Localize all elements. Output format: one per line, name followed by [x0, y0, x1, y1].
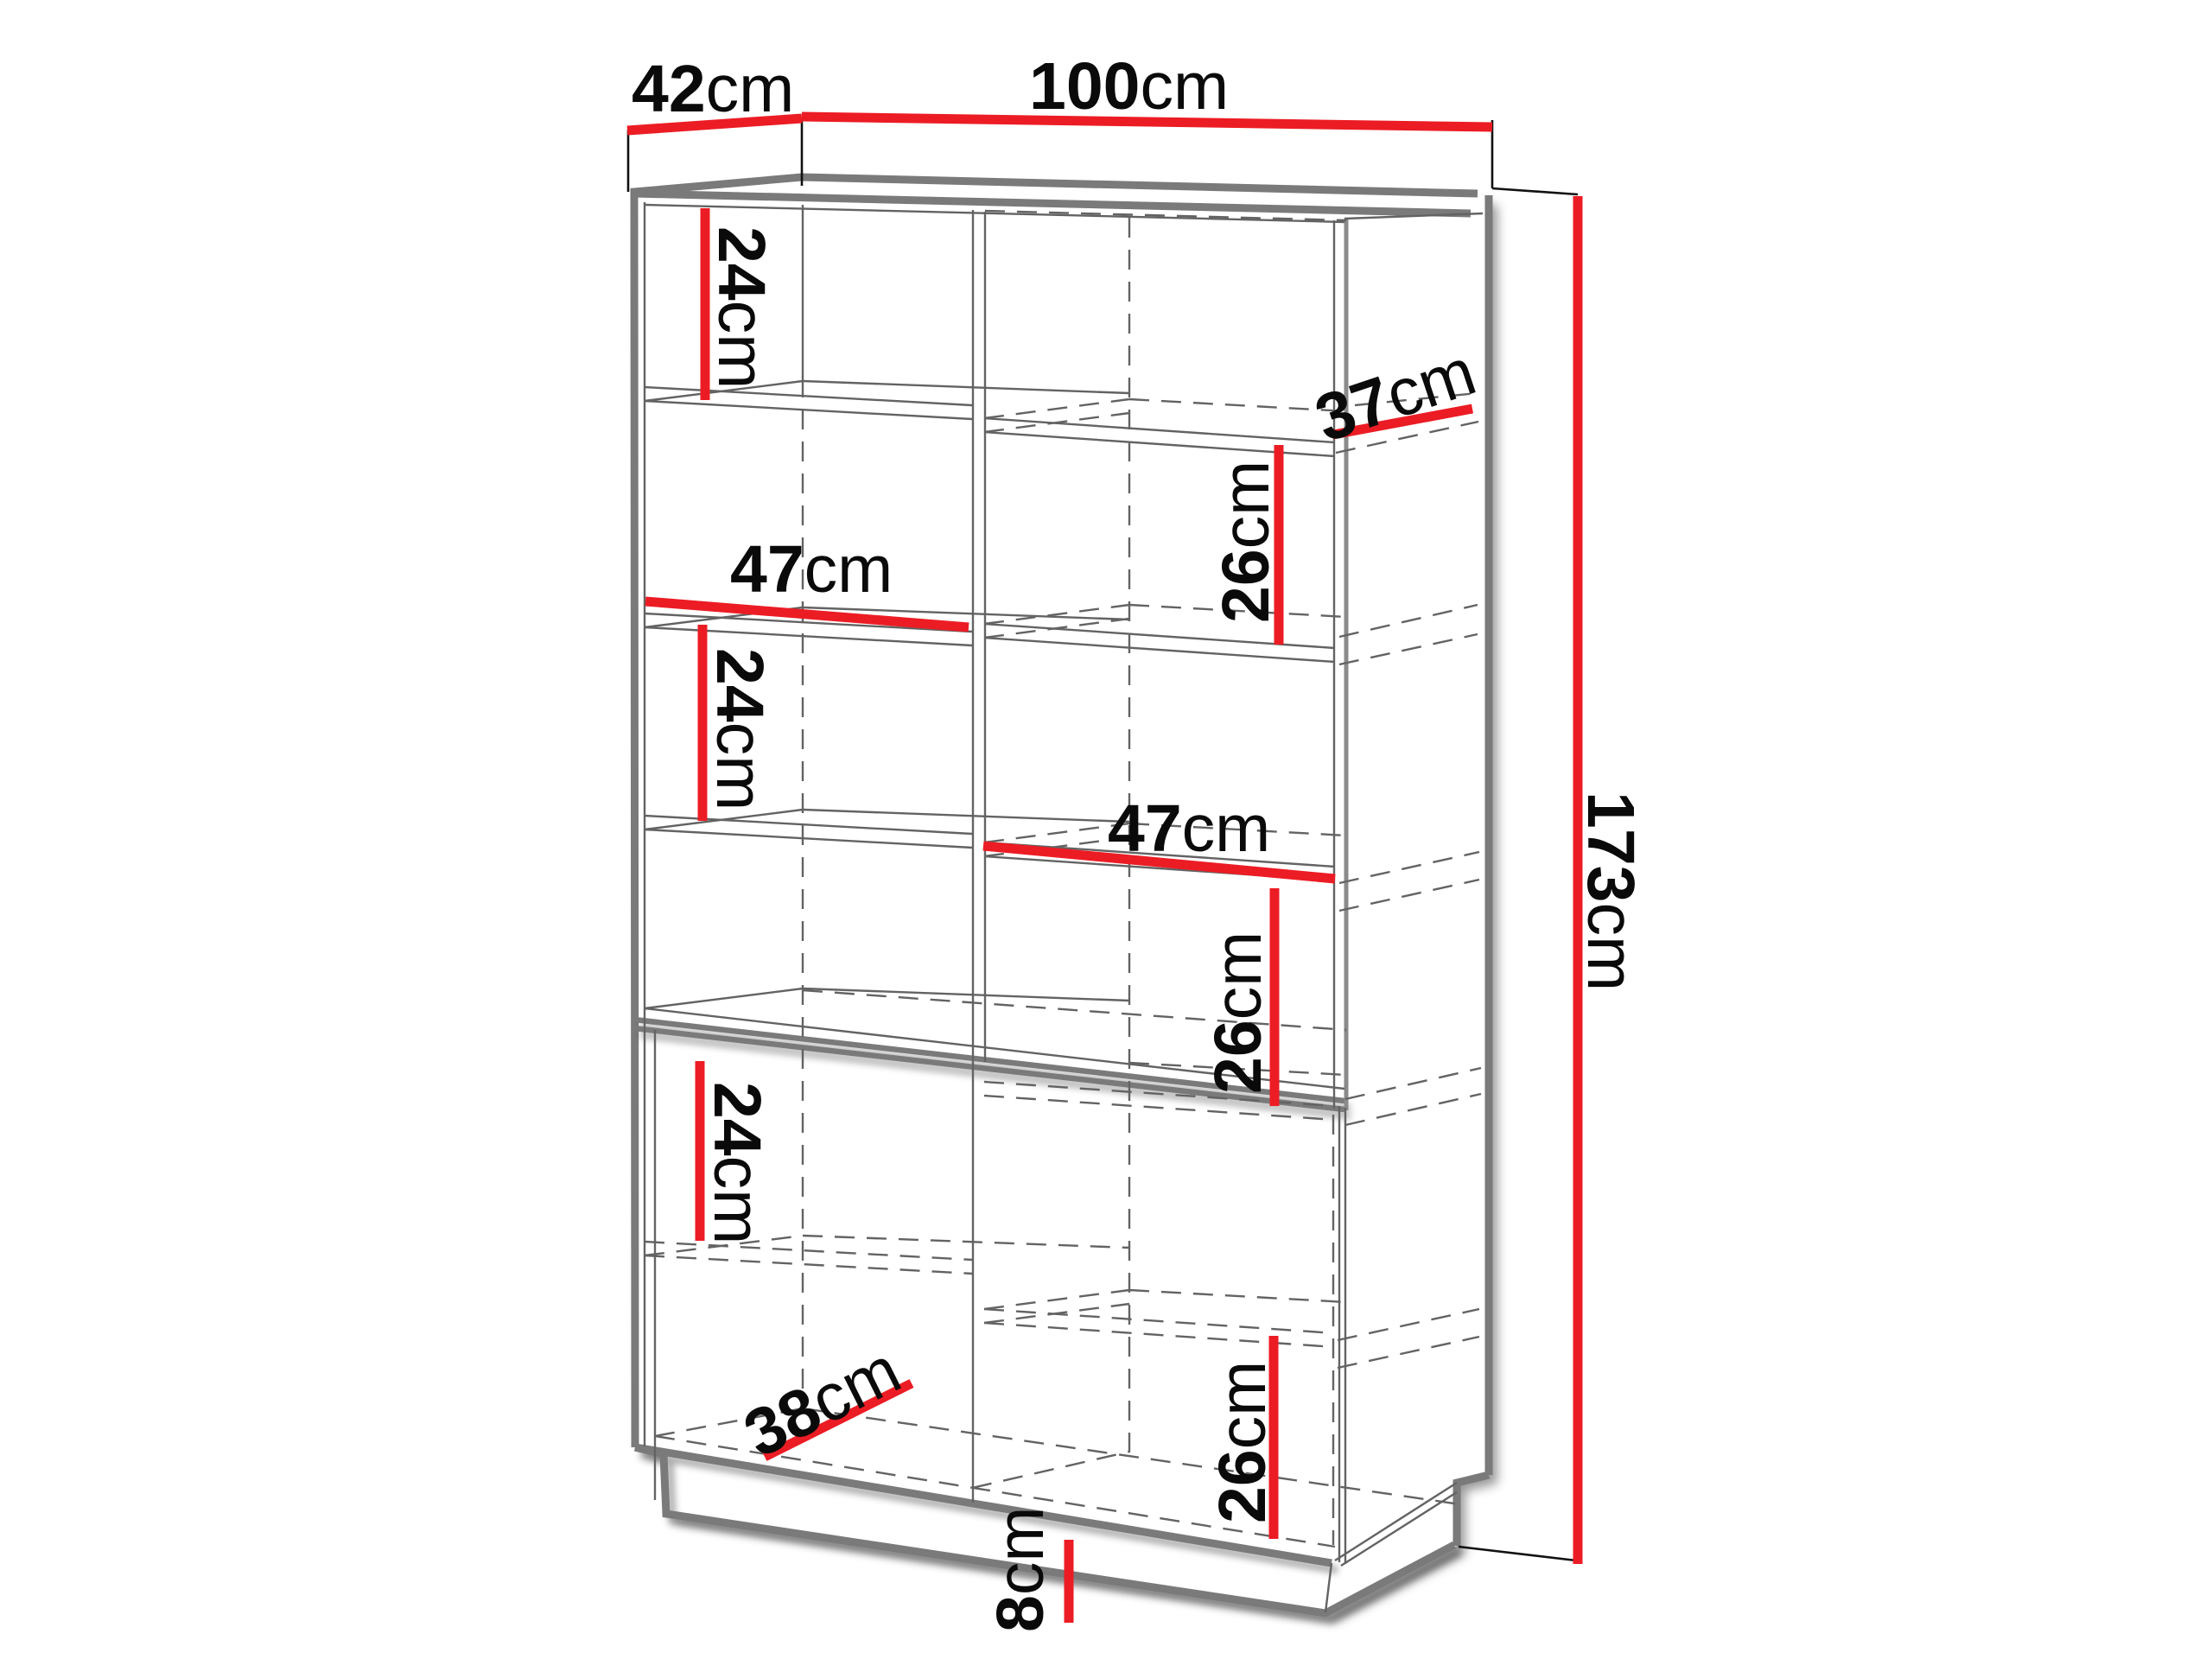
svg-text:24cm: 24cm — [702, 648, 777, 810]
svg-text:24cm: 24cm — [704, 226, 779, 389]
svg-text:26cm: 26cm — [1201, 931, 1275, 1094]
svg-text:173cm: 173cm — [1573, 791, 1648, 991]
svg-text:42cm: 42cm — [632, 52, 794, 126]
svg-text:24cm: 24cm — [700, 1082, 774, 1244]
svg-text:26cm: 26cm — [1205, 1361, 1280, 1523]
svg-text:100cm: 100cm — [1029, 49, 1229, 124]
svg-text:47cm: 47cm — [1108, 791, 1270, 866]
svg-text:47cm: 47cm — [730, 532, 893, 607]
svg-text:26cm: 26cm — [1209, 461, 1283, 623]
svg-text:8cm: 8cm — [983, 1507, 1058, 1632]
